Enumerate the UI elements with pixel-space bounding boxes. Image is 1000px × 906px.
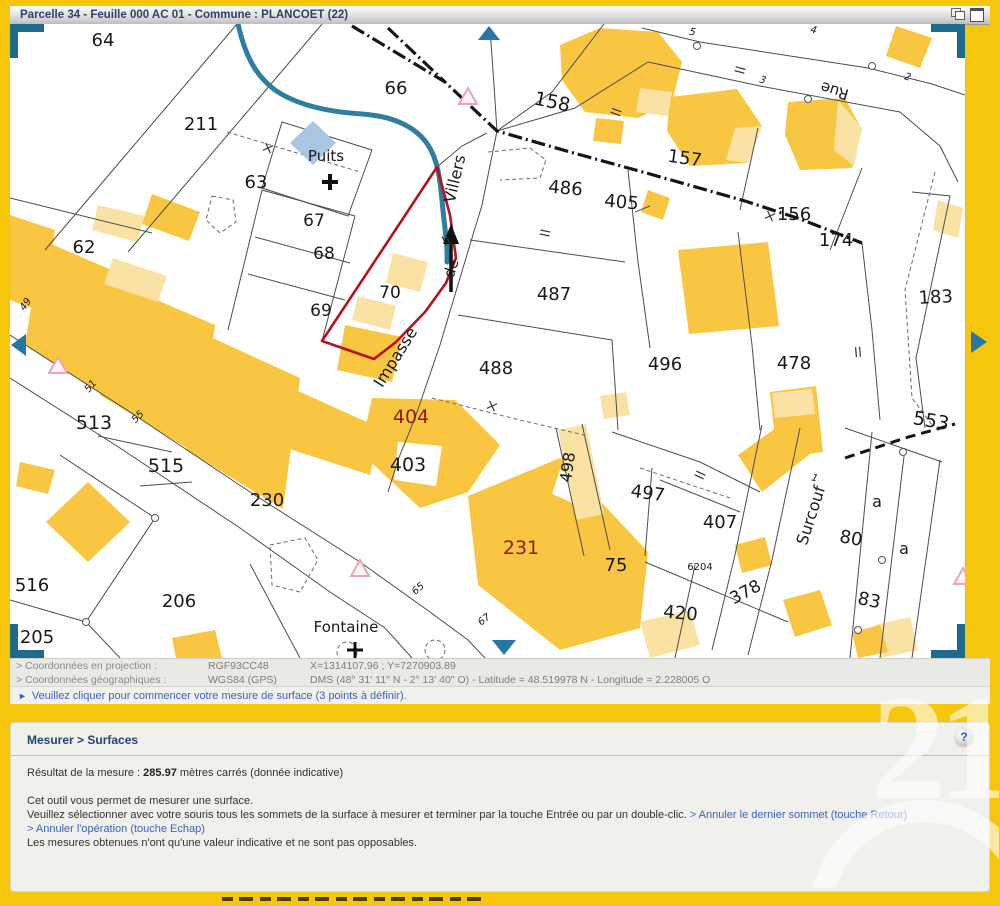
- x-mark: [765, 211, 775, 221]
- map-label-157: 157: [666, 146, 703, 172]
- map-label-Surcouf: Surcouf: [792, 483, 829, 547]
- undo-last-vertex-link[interactable]: > Annuler le dernier sommet (touche Reto…: [690, 809, 907, 821]
- map-label-206: 206: [162, 591, 196, 612]
- cross-icon: [347, 642, 363, 658]
- map-label-de: de: [440, 257, 463, 280]
- map-label-158: 158: [532, 88, 572, 117]
- map-label-70: 70: [379, 283, 401, 303]
- map-label-1: 1: [810, 472, 819, 484]
- map-label-75: 75: [605, 555, 628, 576]
- map-label-486: 486: [547, 177, 583, 201]
- map-label-403: 403: [390, 454, 426, 476]
- map-label-3: 3: [758, 74, 767, 86]
- river-line: [238, 24, 447, 262]
- map-label-496: 496: [648, 354, 682, 375]
- map-canvas[interactable]: 6421166158157634864051561746267686970183…: [10, 24, 965, 658]
- map-title: Parcelle 34 - Feuille 000 AC 01 - Commun…: [10, 9, 348, 21]
- map-label-407: 407: [703, 512, 737, 533]
- map-label-488: 488: [479, 358, 513, 379]
- measure-surface-panel: Mesurer > Surfaces ? Résultat de la mesu…: [10, 722, 990, 892]
- map-label-66: 66: [385, 78, 408, 99]
- map-label-231: 231: [503, 537, 539, 559]
- footer-clipped-text: [222, 897, 482, 901]
- map-label-80: 80: [838, 526, 864, 551]
- map-label-205: 205: [20, 627, 54, 648]
- map-label-405: 405: [603, 191, 639, 215]
- coordinates-status-bar: > Coordonnées en projection : RGF93CC48 …: [10, 658, 990, 687]
- x-mark: [487, 401, 497, 411]
- map-label-487: 487: [537, 284, 571, 305]
- warning-triangle-icon: [351, 560, 369, 576]
- map-label-2: 2: [903, 71, 912, 83]
- map-label-68: 68: [313, 244, 335, 264]
- map-label-a: a: [899, 539, 909, 558]
- panel-help-line1: Cet outil vous permet de mesurer une sur…: [27, 794, 973, 808]
- map-label-230: 230: [250, 490, 284, 511]
- help-icon[interactable]: ?: [955, 728, 973, 746]
- buildings: [10, 26, 963, 658]
- measure-result: Résultat de la mesure : 285.97 mètres ca…: [27, 766, 973, 780]
- cancel-operation-link[interactable]: > Annuler l'opération (touche Echap): [27, 823, 205, 835]
- maximize-window-icon[interactable]: [970, 8, 984, 22]
- map-label-Fontaine: Fontaine: [314, 618, 379, 636]
- measure-instruction-bar: ► Veuillez cliquer pour commencer votre …: [10, 686, 990, 704]
- map-title-bar: Parcelle 34 - Feuille 000 AC 01 - Commun…: [10, 6, 990, 25]
- map-label-183: 183: [918, 286, 953, 309]
- map-label-5: 5: [688, 27, 696, 39]
- projection-coords-value: X=1314107.96 ; Y=7270903.89: [310, 660, 990, 673]
- map-label-6204: 6204: [687, 562, 712, 573]
- map-label-62: 62: [73, 237, 96, 258]
- map-label-4: 4: [809, 25, 818, 37]
- panel-breadcrumb: Mesurer > Surfaces: [27, 733, 138, 747]
- geographic-coords-value: DMS (48° 31' 11" N - 2° 13' 40" O) - Lat…: [310, 674, 990, 687]
- geographic-system: WGS84 (GPS): [208, 674, 310, 687]
- restore-window-icon[interactable]: [951, 8, 965, 20]
- map-label-64: 64: [92, 30, 115, 51]
- measure-instruction-text: Veuillez cliquer pour commencer votre me…: [32, 690, 407, 702]
- map-label-211: 211: [184, 114, 218, 135]
- map-label-515: 515: [148, 455, 184, 477]
- pan-down-icon[interactable]: [492, 640, 516, 655]
- map-label-516: 516: [15, 575, 49, 596]
- map-label-553: 553: [911, 407, 951, 435]
- boundary-tick: [856, 347, 861, 357]
- boundary-tick: [540, 230, 551, 236]
- projection-system: RGF93CC48: [208, 660, 310, 673]
- cadastre-map-viewport[interactable]: 6421166158157634864051561746267686970183…: [10, 24, 965, 658]
- projection-coords-label: > Coordonnées en projection :: [16, 660, 208, 673]
- map-label-a: a: [872, 492, 882, 511]
- map-label-420: 420: [662, 602, 698, 626]
- boundary-tick: [695, 471, 706, 479]
- geographic-coords-label: > Coordonnées géographiques :: [16, 674, 208, 687]
- map-label-174: 174: [819, 230, 853, 251]
- map-label-65: 65: [410, 581, 427, 598]
- cross-icon: [322, 174, 338, 190]
- panel-help-line2: Veuillez sélectionner avec votre souris …: [27, 808, 973, 822]
- warning-triangle-icon: [954, 568, 965, 584]
- boundary-tick: [735, 67, 746, 73]
- map-label-478: 478: [777, 353, 811, 374]
- measure-result-value: 285.97: [143, 767, 177, 779]
- map-label-67: 67: [303, 211, 325, 231]
- pan-up-icon[interactable]: [478, 26, 500, 40]
- map-label-63: 63: [245, 172, 268, 193]
- map-label-69: 69: [310, 301, 332, 321]
- map-label-156: 156: [777, 204, 811, 225]
- pan-right-icon[interactable]: [971, 331, 987, 353]
- map-label-Puits: Puits: [308, 147, 344, 165]
- panel-help-line4: Les mesures obtenues n'ont qu'une valeur…: [27, 836, 973, 850]
- map-label-497: 497: [629, 481, 666, 507]
- map-label-83: 83: [856, 588, 883, 613]
- arrow-bullet-icon: ►: [10, 691, 32, 701]
- page: { "title_bar": { "title": "Parcelle 34 -…: [0, 0, 1000, 906]
- map-label-67: 67: [476, 611, 493, 628]
- map-label-404: 404: [393, 406, 429, 428]
- map-label-513: 513: [76, 412, 112, 434]
